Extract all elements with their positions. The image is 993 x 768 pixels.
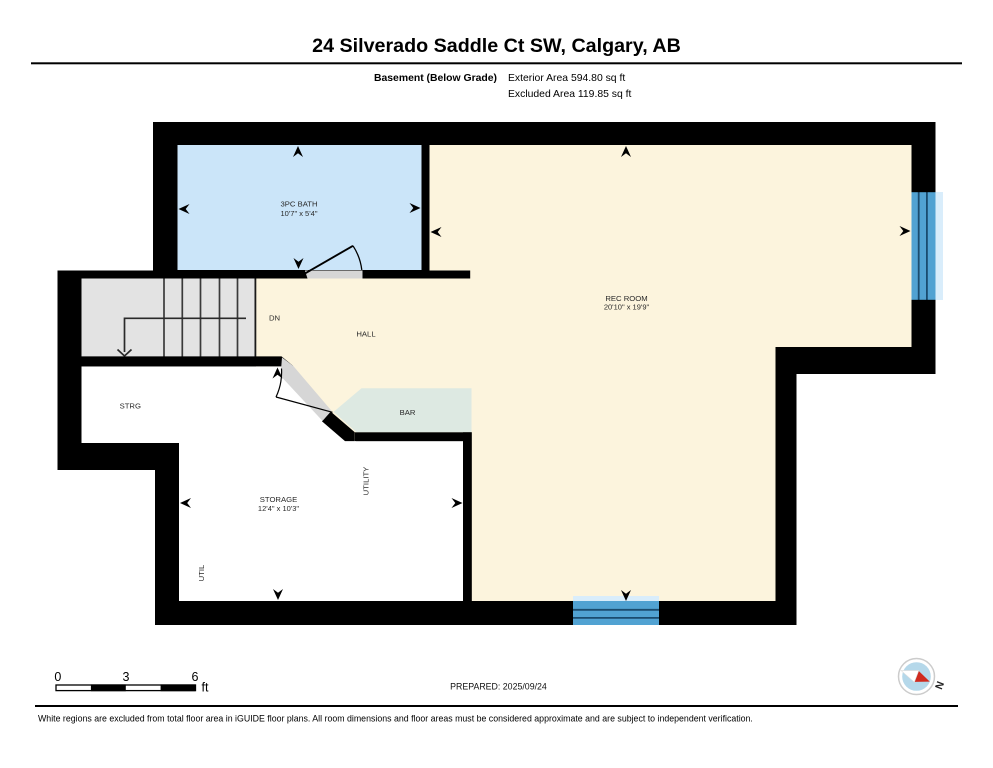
- svg-text:BAR: BAR: [400, 408, 416, 417]
- svg-text:3PC BATH: 3PC BATH: [280, 200, 317, 209]
- svg-text:UTILITY: UTILITY: [362, 467, 371, 496]
- svg-text:24 Silverado Saddle Ct SW, Cal: 24 Silverado Saddle Ct SW, Calgary, AB: [312, 35, 681, 57]
- svg-text:Basement (Below Grade): Basement (Below Grade): [374, 73, 497, 84]
- svg-text:STRG: STRG: [120, 402, 141, 411]
- svg-text:UTIL: UTIL: [197, 564, 206, 581]
- svg-text:12'4" x 10'3": 12'4" x 10'3": [258, 504, 299, 513]
- svg-text:Excluded Area 119.85 sq ft: Excluded Area 119.85 sq ft: [508, 89, 632, 100]
- svg-text:White regions are excluded fro: White regions are excluded from total fl…: [38, 714, 753, 724]
- svg-text:ft: ft: [202, 681, 209, 695]
- svg-text:STORAGE: STORAGE: [260, 495, 297, 504]
- svg-text:6: 6: [192, 670, 199, 684]
- svg-text:10'7" x 5'4": 10'7" x 5'4": [281, 209, 318, 218]
- svg-text:HALL: HALL: [356, 330, 376, 339]
- svg-text:3: 3: [123, 670, 130, 684]
- svg-text:0: 0: [54, 670, 61, 684]
- svg-text:DN: DN: [269, 314, 280, 323]
- svg-text:PREPARED: 2025/09/24: PREPARED: 2025/09/24: [450, 682, 547, 692]
- svg-text:20'10" x 19'9": 20'10" x 19'9": [604, 303, 650, 312]
- svg-text:Exterior Area 594.80 sq ft: Exterior Area 594.80 sq ft: [508, 73, 625, 84]
